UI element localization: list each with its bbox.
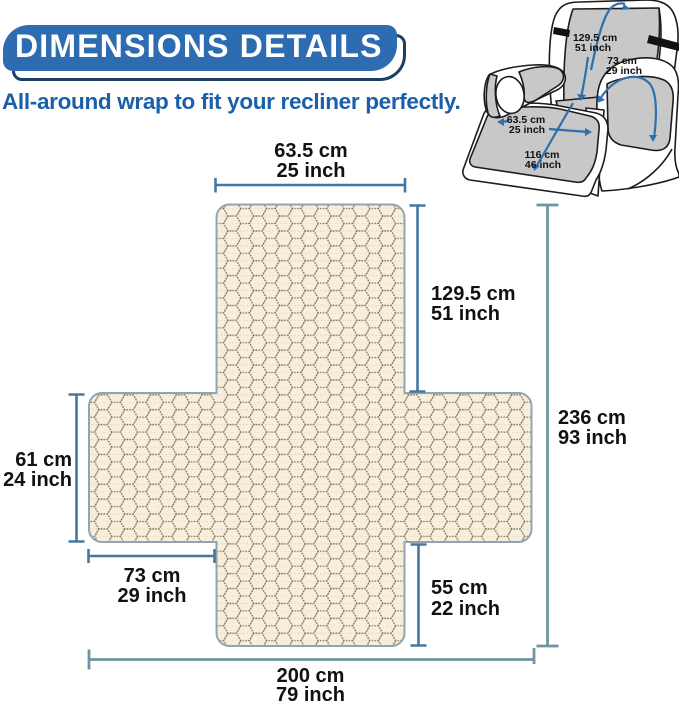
svg-text:93 inch: 93 inch (558, 427, 627, 449)
svg-text:63.5 cm: 63.5 cm (274, 140, 347, 162)
svg-text:236 cm: 236 cm (558, 407, 626, 429)
svg-text:129.5 cm: 129.5 cm (431, 283, 516, 305)
svg-text:46 inch: 46 inch (525, 159, 561, 171)
svg-text:25 inch: 25 inch (509, 124, 545, 136)
svg-text:79 inch: 79 inch (276, 684, 345, 702)
svg-text:22 inch: 22 inch (431, 598, 500, 620)
svg-text:73 cm: 73 cm (124, 565, 181, 587)
svg-text:25 inch: 25 inch (277, 160, 346, 182)
svg-text:55 cm: 55 cm (431, 577, 488, 599)
svg-text:24 inch: 24 inch (3, 469, 72, 491)
svg-text:29 inch: 29 inch (118, 585, 187, 607)
svg-text:29 inch: 29 inch (606, 65, 642, 77)
svg-text:51 inch: 51 inch (575, 42, 611, 54)
svg-text:61 cm: 61 cm (15, 449, 72, 471)
svg-text:51 inch: 51 inch (431, 303, 500, 325)
